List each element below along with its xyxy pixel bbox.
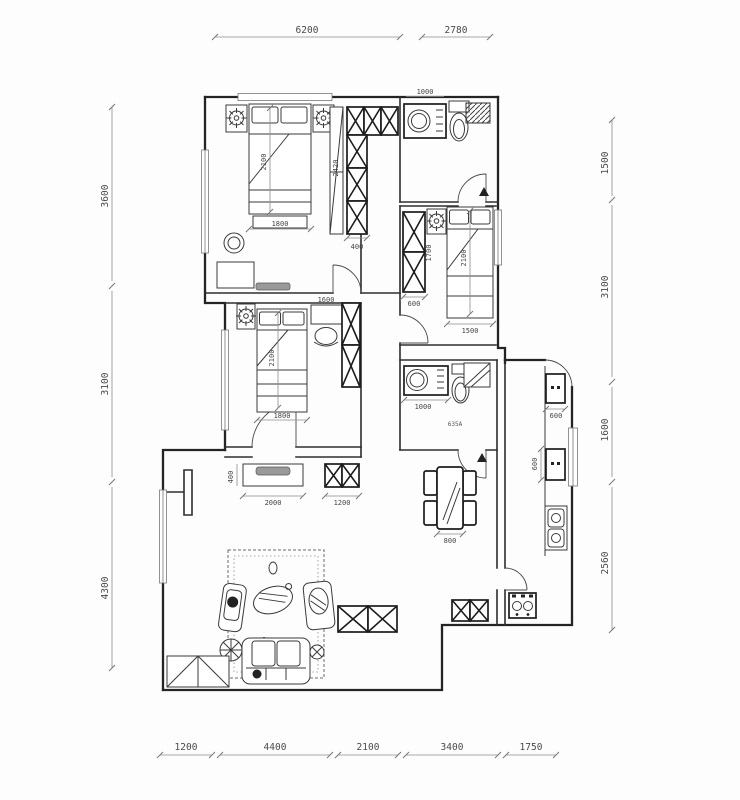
dim-right-1600: 1600 (600, 418, 611, 441)
floor-plan-canvas: 6200 2780 3600 3100 4300 1500 3100 1600 … (0, 0, 740, 800)
dining-table (437, 467, 463, 529)
dim-top-2780: 2780 (445, 25, 468, 36)
door-marker-bath2 (477, 453, 487, 462)
window-master-top (238, 94, 332, 101)
dining-chair (463, 501, 476, 525)
wall-kitchen-left (497, 360, 505, 625)
coffee-table (250, 581, 298, 619)
dim-bottom-4400: 4400 (264, 742, 287, 753)
rug-ornament (269, 562, 277, 574)
kitchen: 600 600 (509, 366, 568, 618)
label-bed2-wardrobe-length: 1700 (425, 245, 433, 262)
lamp-icon (236, 306, 256, 326)
label-bed3-width: 1800 (274, 412, 291, 420)
master-stool (224, 233, 244, 253)
armchair-right (303, 581, 336, 631)
door-bath1 (458, 174, 486, 202)
bed3-pillow-right (283, 312, 304, 325)
kitchen-stove (509, 593, 536, 618)
wall-bed2-bottom (400, 345, 497, 360)
dim-bottom-1200: 1200 (175, 742, 198, 753)
label-master-bed-length: 2100 (260, 154, 268, 171)
kitchen-sink (545, 506, 567, 550)
label-tv-cabinet-width: 2000 (265, 499, 282, 507)
label-bed3-length: 2100 (268, 350, 276, 367)
label-bath1-vanity: 1000 (417, 88, 434, 96)
bath1-shower-hatch (466, 103, 490, 123)
label-bath2-note: 635A (448, 421, 463, 428)
label-bed3-desk: 1600 (318, 296, 335, 304)
master-dresser (217, 262, 254, 288)
label-tv-cabinet-depth: 400 (227, 471, 235, 484)
label-bed2-width: 1500 (462, 327, 479, 335)
door-bed2 (400, 315, 428, 343)
floor-plan-drawing: 6200 2780 3600 3100 4300 1500 3100 1600 … (0, 0, 740, 800)
bed2-pillow-right (471, 210, 490, 224)
armchair-left (218, 583, 247, 633)
wall-duct-stub (163, 470, 192, 515)
wall-bath1-bottom (400, 202, 498, 206)
bed3-chair (315, 328, 337, 345)
bath1-toilet-bowl (450, 113, 468, 141)
wall-living-top (225, 447, 361, 457)
master-closet: 2420 400 (330, 107, 398, 251)
dim-right-1500: 1500 (600, 151, 611, 174)
label-shoe-cabinet: 1200 (334, 499, 351, 507)
living-room: 2000 400 1200 (218, 464, 362, 684)
side-stool (310, 645, 324, 659)
bedroom-left: 2100 1800 1600 (236, 296, 360, 423)
dim-left-3600: 3600 (100, 184, 111, 207)
master-pillow-right (281, 107, 307, 123)
dim-right-3100: 3100 (600, 275, 611, 298)
bed2-pillow-left (450, 210, 469, 224)
label-kitchen-unit-mid: 600 (531, 458, 539, 471)
bathroom-middle: 1000 635A (401, 363, 490, 428)
storage-cabinets (338, 600, 488, 632)
lamp-icon (227, 108, 247, 128)
bath1-vanity (404, 104, 446, 138)
bedroom-right: 600 1700 2100 1500 (400, 207, 496, 335)
lamp-icon (427, 211, 447, 231)
dim-right-2560: 2560 (600, 551, 611, 574)
wall-master-bottom (205, 293, 400, 303)
dim-left-3100: 3100 (100, 372, 111, 395)
dim-bottom-3400: 3400 (441, 742, 464, 753)
dimension-lines-bottom: 1200 4400 2100 3400 1750 (157, 742, 559, 758)
master-stool-inner (228, 237, 240, 249)
dining-chair (424, 471, 437, 495)
windows (160, 94, 578, 584)
dining-chair (463, 471, 476, 495)
kitchen-appliance-mid (546, 449, 565, 480)
dining-chair (424, 501, 437, 525)
balcony-cabinet (167, 656, 229, 687)
tv-set (256, 467, 290, 475)
label-bath2-vanity: 1000 (415, 403, 432, 411)
dim-bottom-1750: 1750 (520, 742, 543, 753)
dimension-lines-top: 6200 2780 (212, 25, 493, 40)
dimension-lines-left: 3600 3100 4300 (100, 104, 115, 671)
label-closet-width: 400 (351, 243, 364, 251)
dim-top-6200: 6200 (296, 25, 319, 36)
door-kitchen (505, 568, 527, 590)
label-bed2-length: 2100 (460, 250, 468, 267)
sofa (242, 638, 310, 684)
dimension-lines-right: 1500 3100 1600 2560 (600, 117, 615, 633)
dim-left-4300: 4300 (100, 576, 111, 599)
wall-left-lower (163, 450, 225, 690)
dim-bottom-2100: 2100 (357, 742, 380, 753)
label-closet-height: 2420 (332, 160, 340, 177)
master-tv (256, 283, 290, 290)
label-master-bed-width: 1800 (272, 220, 289, 228)
label-dining-table: 800 (444, 537, 457, 545)
dining-area: 800 (424, 467, 476, 545)
kitchen-appliance-top (546, 374, 565, 403)
door-master (333, 265, 361, 293)
label-bed2-wardrobe-width: 600 (408, 300, 421, 308)
master-bedroom: 2100 1800 2420 400 (217, 104, 398, 290)
master-pillow-left (252, 107, 278, 123)
door-marker-bath1 (479, 187, 489, 196)
bed3-desk (311, 305, 342, 324)
label-kitchen-unit-top: 600 (550, 412, 563, 420)
